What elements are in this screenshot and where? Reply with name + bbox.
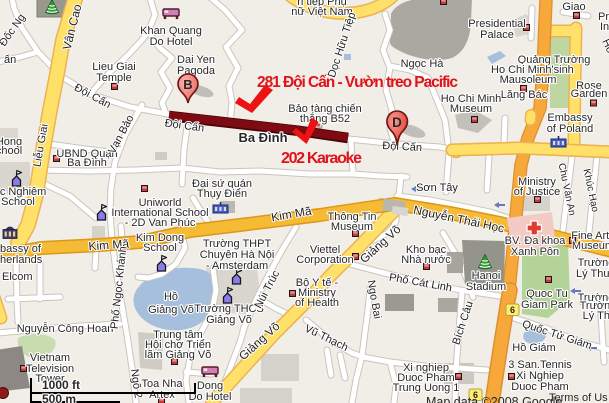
svg-text:Giảng Võ: Giảng Võ (206, 314, 252, 326)
svg-text:281 Đội Cấn - Vườn treo Pacifi: 281 Đội Cấn - Vườn treo Pacific (257, 74, 458, 91)
svg-text:Museum: Museum (331, 221, 373, 233)
svg-text:Artex: Artex (149, 389, 175, 401)
svg-text:Ngọc Hà: Ngọc Hà (401, 58, 445, 70)
svg-text:Lăng Bác: Lăng Bác (501, 89, 548, 101)
svg-text:Sơn Tây: Sơn Tây (416, 182, 458, 194)
svg-text:Mausoleum: Mausoleum (500, 74, 557, 86)
svg-text:Garden: Garden (571, 88, 608, 100)
svg-text:- 2D Van Phúc: - 2D Van Phúc (125, 217, 196, 229)
svg-text:Map data ©2008 Google: Map data ©2008 Google (426, 395, 562, 403)
svg-text:In: In (600, 21, 609, 33)
svg-text:of Health: of Health (295, 297, 339, 309)
svg-text:nữ Việt Nam: nữ Việt Nam (291, 6, 353, 18)
svg-text:Terms of Us: Terms of Us (549, 392, 608, 403)
svg-text:500 m: 500 m (42, 392, 76, 403)
svg-text:Nguyễn Công Hoan: Nguyễn Công Hoan (17, 322, 114, 335)
svg-text:of Justice: of Justice (514, 186, 560, 198)
svg-text:Ba Đình: Ba Đình (238, 130, 287, 145)
svg-text:Museum: Museum (450, 103, 492, 115)
svg-text:Elcom: Elcom (2, 271, 33, 283)
svg-text:Xanh Pôn: Xanh Pôn (511, 246, 559, 258)
svg-text:lãm Giảng Võ: lãm Giảng Võ (145, 349, 212, 361)
svg-text:School: School (143, 242, 177, 254)
svg-text:chool: chool (0, 145, 22, 157)
svg-text:Museum: Museum (572, 240, 609, 252)
svg-text:Corporation: Corporation (296, 254, 353, 266)
svg-text:Hồ: Hồ (164, 291, 178, 303)
svg-text:Giao: Giao (562, 1, 585, 13)
svg-text:- Amsterdam: - Amsterdam (206, 260, 268, 272)
svg-text:Do Hotel: Do Hotel (150, 36, 193, 48)
svg-text:Ba Đình: Ba Đình (67, 157, 107, 169)
svg-text:ấn: ấn (4, 54, 16, 66)
svg-text:of Poland: of Poland (547, 123, 593, 135)
svg-text:Giam Park: Giam Park (521, 299, 573, 311)
svg-text:Thụy Điển: Thụy Điển (197, 188, 247, 200)
svg-text:Palace: Palace (480, 29, 514, 41)
svg-text:Stadium: Stadium (466, 281, 506, 293)
svg-text:B: B (183, 77, 192, 92)
svg-text:Nhà nước: Nhà nước (401, 254, 451, 266)
svg-text:1000 ft: 1000 ft (42, 378, 80, 392)
svg-text:Lý Thườ: Lý Thườ (576, 268, 609, 280)
svg-text:Đội Cấn: Đội Cấn (382, 140, 422, 154)
svg-text:School: School (1, 196, 35, 208)
svg-text:herlands: herlands (0, 254, 43, 266)
svg-text:Giảng Võ: Giảng Võ (148, 304, 194, 316)
svg-text:Trung Uong 1: Trung Uong 1 (393, 382, 460, 394)
svg-text:202 Karaoke: 202 Karaoke (281, 150, 362, 167)
svg-text:Hồ Giám: Hồ Giám (512, 342, 555, 354)
svg-text:thắng B52: thắng B52 (300, 112, 350, 125)
svg-text:Temple: Temple (96, 72, 131, 84)
svg-text:D: D (392, 115, 402, 130)
svg-text:Lý Thư: Lý Thư (583, 310, 609, 322)
